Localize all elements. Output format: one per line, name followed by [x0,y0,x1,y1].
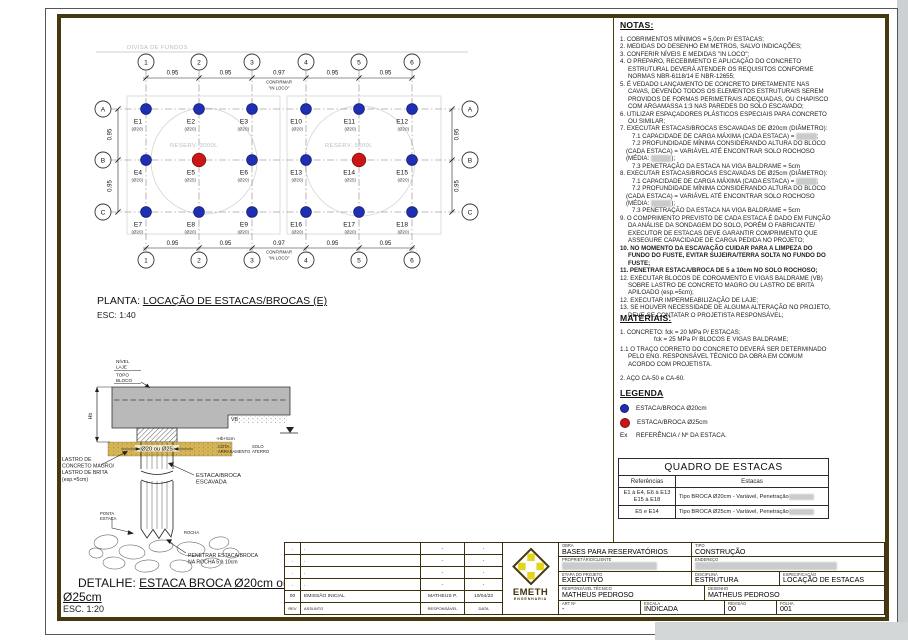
schedule-desc-cell: Tipo BROCA Ø25cm - Variável, Penetração … [676,506,828,518]
field-etapa: ETAPA DO PROJETO EXECUTIVO [559,572,692,585]
revision-cell: - [465,543,502,554]
revision-cell: REV [285,603,301,614]
schedule-row: E1 à E4, E6 à E13 E15 à E18Tipo BROCA Ø2… [619,488,828,506]
note-item: 12. EXECUTAR BLOCOS DE COROAMENTO E VIGA… [620,275,831,297]
dimension-value: 0.95 [327,71,339,77]
pile-id-label: E18 [396,222,408,229]
revision-cell: EMISSÃO INICIAL [301,591,421,602]
field-especificacao: ESPECIFICAÇÃO LOCAÇÃO DE ESTACAS [780,572,884,585]
dimension-value: 0.95 [380,71,392,77]
pile-marker-20 [407,207,418,218]
pile-diameter-label: (Ø20) [131,230,143,235]
mat-item: 1.1 O TRAÇO CORRETO DO CONCRETO DEVERÁ S… [620,346,831,368]
pile-id-label: E6 [240,170,248,177]
cota-label: -Hb+5cm [216,436,235,441]
pile-id-label: E1 [134,119,142,126]
pile-diameter-label: (Ø20) [237,230,249,235]
axis-bubble-label: 6 [410,59,414,66]
schedule-ref-cell: E5 e E14 [619,506,676,518]
notes-heading: NOTAS: [620,20,831,30]
plan-title: PLANTA: LOCAÇÃO DE ESTACAS/BROCAS (E) [97,295,327,307]
redacted-value: ###### [796,178,817,185]
field-row: OBRA BASES PARA RESERVATÓRIOS TIPO CONST… [559,543,884,557]
pile-marker-25 [192,153,206,167]
note-item: 7. EXECUTAR ESTACAS/BROCAS ESCAVADAS DE … [620,125,831,132]
drawing-sheet: DIVISA DE FUNDOSRESERV. 3000LRESERV. 500… [0,0,908,640]
revision-header-row: REVASSUNTORESPONSÁVELDATA [285,603,502,614]
revision-cell: . [301,567,421,578]
revision-cell: - [465,567,502,578]
pile-id-label: E10 [290,119,302,126]
note-item: 2. MEDIDAS DO DESENHO EM METROS, SALVO I… [620,43,831,50]
revision-cell: - [421,579,465,590]
divisa-label: DIVISA DE FUNDOS [127,45,188,51]
lastro-label: LASTRO DECONCRETO MAGRO/LASTRO DE BRITA(… [62,457,115,483]
topo-bloco-label: TOPOBLOCO [116,373,133,383]
revision-cell: 00 [285,591,301,602]
legend-prefix: Ex [620,432,629,439]
pile-marker-20 [194,207,205,218]
ponta-estaca-label: PONTAESTACA [100,511,117,521]
note-item: 7.3 PENETRAÇÃO DA ESTACA NA VIGA BALDRAM… [620,207,831,214]
dimension-value: 0.95 [380,241,392,247]
revision-cell: - [421,555,465,566]
dimension-value: 0.95 [455,128,461,140]
note-item: 5. É VEDADO LANÇAMENTO DE CONCRETO DIRET… [620,81,831,111]
note-item: 7.1 CAPACIDADE DE CARGA MÁXIMA (CADA EST… [620,133,831,140]
note-item: 7.2 PROFUNDIDADE MÍNIMA CONSIDERANDO ALT… [620,185,831,207]
axis-bubble-label: B [101,157,106,164]
mat-item: fck = 25 MPa P/ BLOCOS E VIGAS BALDRAME; [620,336,831,343]
field-endereco: ENDEREÇO ###############################… [692,557,884,570]
schedule-header-cell: Estacas [676,476,828,487]
legend-item: ESTACA/BROCA Ø25cm [620,418,831,428]
pile-id-label: E5 [187,170,195,177]
axis-bubble-label: A [101,106,106,113]
note-item: 6. UTILIZAR ESPAÇADORES PLÁSTICOS ESPECI… [620,111,831,126]
pile-marker-20 [247,104,258,115]
redacted-value: ######## [789,494,814,500]
scan-margin-right [897,0,908,640]
pile-diameter-label: (Ø20) [237,178,249,183]
rocha-label: ROCHA [184,530,199,535]
title-block-fields: OBRA BASES PARA RESERVATÓRIOS TIPO CONST… [559,543,884,614]
dimension-value: 0.95 [108,128,114,140]
revision-cell: DATA [465,603,502,614]
detail-title-prefix: DETALHE: [78,576,139,590]
axis-bubble-label: 6 [410,257,414,264]
pile-schedule-title: QUADRO DE ESTACAS [619,459,828,476]
revision-cell: . [285,555,301,566]
logo-name: EMETH [513,588,548,597]
pile-diameter-label: (Ø20) [291,178,303,183]
dimension-value: 0.95 [327,241,339,247]
revision-empty-row: ..-- [285,567,502,579]
revision-entry-row: 00EMISSÃO INICIALMATHEUS P.10/04/23 [285,591,502,603]
notes-list: 1. COBRIMENTOS MÍNIMOS = 5,0cm P/ ESTACA… [620,36,831,319]
revision-empty-row: ..-- [285,543,502,555]
axis-bubble-label: 3 [250,257,254,264]
pile-marker-20 [194,104,205,115]
field-row: ART Nº - ESCALA INDICADA REVISÃO 00 FOLH… [559,601,884,614]
pile-diameter-label: (Ø20) [397,127,409,132]
redacted-value: ###### [651,155,672,162]
plan-scale: ESC: 1:40 [97,310,136,320]
pile-marker-20 [407,104,418,115]
pile-id-label: E3 [240,119,248,126]
materials-list: 1. CONCRETO: fck = 20 MPa P/ ESTACAS;fck… [620,329,831,382]
legend-label: REFERÊNCIA / Nº DA ESTACA. [636,432,727,439]
dimension-note: CONFIRMAR [266,80,292,85]
pile-marker-20 [301,155,312,166]
pile-marker-20 [247,155,258,166]
logo-subtitle: ENGENHARIA [514,597,547,601]
pile-diameter-label: (Ø25) [344,178,356,183]
axis-bubble-label: B [468,157,473,164]
revision-table: ..--..--..--..--00EMISSÃO INICIALMATHEUS… [285,543,503,614]
revision-cell: . [285,567,301,578]
pile-marker-20 [354,104,365,115]
pile-marker-20 [141,104,152,115]
pile-id-label: E8 [187,222,195,229]
dia-label: Ø20 ou Ø25 [141,447,173,453]
pile-marker-20 [247,207,258,218]
baldrame-hatch-section [137,428,177,442]
ponta-leader-arrow [128,530,135,535]
revision-cell: ASSUNTO [301,603,421,614]
redacted-value: #################################### [695,562,837,570]
revision-cell: . [285,579,301,590]
axis-bubble-label: 3 [250,59,254,66]
plan-title-underlined: LOCAÇÃO DE ESTACAS/BROCAS (E) [143,295,327,307]
note-item: 1. COBRIMENTOS MÍNIMOS = 5,0cm P/ ESTACA… [620,36,831,43]
legend-list: ESTACA/BROCA Ø20cmESTACA/BROCA Ø25cmExRE… [620,404,831,439]
vb-label: VB [231,417,238,423]
pile-layout-plan: DIVISA DE FUNDOSRESERV. 3000LRESERV. 500… [80,38,486,276]
pile-id-label: E11 [344,119,356,126]
schedule-desc-cell: Tipo BROCA Ø20cm - Variável, Penetração … [676,488,828,505]
detail-title: DETALHE: ESTACA BROCA Ø20cm ou [78,576,290,590]
detail-title-line2: Ø25cm [63,590,102,604]
pile-schedule-header: ReferênciasEstacas [619,476,828,488]
legend-label: ESTACA/BROCA Ø20cm [636,405,707,412]
field-row: RESPONSÁVEL TÉCNICO MATHEUS PEDROSO DESE… [559,586,884,600]
redacted-value: ######################## [562,562,657,570]
axis-bubble-label: 5 [357,59,361,66]
plan-title-prefix: PLANTA: [97,295,143,307]
pile-id-label: E16 [290,222,302,229]
revision-cell: . [301,579,421,590]
field-tipo: TIPO CONSTRUÇÃO [692,543,884,556]
pile-id-label: E4 [134,170,142,177]
pile-schedule-rows: E1 à E4, E6 à E13 E15 à E18Tipo BROCA Ø2… [619,488,828,518]
revision-cell: - [465,579,502,590]
reservoir-label: RESERV. 3000L [170,143,218,149]
legend-heading: LEGENDA [620,388,831,398]
legend-section: LEGENDA ESTACA/BROCA Ø20cmESTACA/BROCA Ø… [620,388,831,439]
note-item: 11. PENETRAR ESTACA/BROCA DE 5 a 10cm NO… [620,267,831,274]
pile-tip-zigzag [141,529,173,539]
legend-blue-pile-icon [620,404,629,413]
hb-label: Hb [88,413,94,420]
lastro-vb-texture [232,415,288,423]
axis-bubble-label: 4 [304,257,308,264]
materials-heading: MATERIAIS: [620,313,831,323]
pile-id-label: E14 [343,170,355,177]
pile-id-label: E13 [290,170,302,177]
axis-bubble-label: 1 [144,59,148,66]
pile-marker-20 [141,155,152,166]
notes-section: NOTAS: 1. COBRIMENTOS MÍNIMOS = 5,0cm P/… [620,20,831,319]
legend-item: ESTACA/BROCA Ø20cm [620,404,831,413]
revision-cell: MATHEUS P. [421,591,465,602]
redacted-value: ###### [651,200,672,207]
legend-red-pile-icon [620,418,630,428]
revision-cell: RESPONSÁVEL [421,603,465,614]
pile-diameter-label: (Ø20) [291,127,303,132]
dimension-value: 0.95 [108,180,114,192]
note-item: 12. EXECUTAR IMPERMEABILIZAÇÃO DE LAJE; [620,297,831,304]
axis-bubble-label: 4 [304,59,308,66]
legend-label: ESTACA/BROCA Ø25cm [637,419,708,426]
pile-id-label: E17 [343,222,355,229]
hb-arrow-bottom [95,437,99,442]
note-item: 7.2 PROFUNDIDADE MÍNIMA CONSIDERANDO ALT… [620,140,831,162]
emeth-logo-icon [511,545,551,588]
axis-bubble-label: A [468,106,473,113]
revision-cell: - [421,543,465,554]
pile-marker-20 [354,207,365,218]
schedule-row: E5 e E14Tipo BROCA Ø25cm - Variável, Pen… [619,506,828,518]
solo-aterro-label: SOLOATERRO [252,444,270,454]
field-obra: OBRA BASES PARA RESERVATÓRIOS [559,543,692,556]
pile-diameter-label: (Ø20) [131,178,143,183]
field-disciplina: DISCIPLINA ESTRUTURA [692,572,780,585]
field-revisao: REVISÃO 00 [725,601,777,614]
pile-diameter-label: (Ø20) [291,230,303,235]
field-art: ART Nº - [559,601,641,614]
pile-marker-20 [301,207,312,218]
pile-id-label: E7 [134,222,142,229]
revision-cell: . [301,543,421,554]
pile-diameter-label: (Ø20) [184,127,196,132]
legend-item: ExREFERÊNCIA / Nº DA ESTACA. [620,432,831,439]
dimension-value: 0.95 [220,71,232,77]
field-row: ETAPA DO PROJETO EXECUTIVO DISCIPLINA ES… [559,572,884,586]
dimension-value: 0.97 [273,241,285,247]
mat-item: 2. AÇO CA-50 e CA-60. [620,375,831,382]
axis-bubble-label: 2 [197,257,201,264]
pile-detail-drawing: Hb NÍVELLAJE TOPOBLOCO VB -Hb+5cm COTAAR… [55,352,307,576]
materials-section: MATERIAIS: 1. CONCRETO: fck = 20 MPa P/ … [620,313,831,382]
note-item: 9. O COMPRIMENTO PREVISTO DE CADA ESTACA… [620,215,831,245]
pile-diameter-label: (Ø20) [237,127,249,132]
scan-margin-bottom [655,622,908,640]
redacted-value: ######## [789,509,814,515]
field-escala: ESCALA INDICADA [641,601,725,614]
schedule-ref-cell: E1 à E4, E6 à E13 E15 à E18 [619,488,676,505]
dimension-value: 0.95 [455,180,461,192]
reservoir-label: RESERV. 5000L [325,143,373,149]
field-responsavel: RESPONSÁVEL TÉCNICO MATHEUS PEDROSO [559,586,705,599]
title-block: ..--..--..--..--00EMISSÃO INICIALMATHEUS… [284,542,885,615]
revision-empty-row: ..-- [285,579,502,591]
level-marker-icon [286,427,294,433]
estaca-escavada-label: ESTACA/BROCAESCAVADA [196,473,241,486]
note-item: 8. EXECUTAR ESTACAS/BROCAS ESCAVADAS DE … [620,170,831,177]
mat-item: 1. CONCRETO: fck = 20 MPa P/ ESTACAS; [620,329,831,336]
pile-marker-20 [141,207,152,218]
note-item: 7.3 PENETRAÇÃO DA ESTACA NA VIGA BALDRAM… [620,163,831,170]
pile-id-label: E2 [187,119,195,126]
column-divider [613,18,614,542]
axis-bubble-label: C [468,209,473,216]
pile-id-label: E15 [396,170,408,177]
pile-marker-25 [352,153,366,167]
revision-cell: - [421,567,465,578]
note-item: 7.1 CAPACIDADE DE CARGA MÁXIMA (CADA EST… [620,178,831,185]
dimension-note: "IN LOCO" [269,256,290,261]
field-proprietario: PROPRIETÁRIO/CLIENTE ###################… [559,557,692,570]
detail-scale: ESC. 1:20 [63,604,104,614]
dimension-value: 0.95 [167,241,179,247]
dimension-value: 0.95 [167,71,179,77]
pile-diameter-label: (Ø20) [344,127,356,132]
pile-diameter-label: (Ø20) [131,127,143,132]
field-folha: FOLHA 001 [777,601,884,614]
pile-diameter-label: (Ø25) [184,178,196,183]
nivel-laje-label: NÍVELLAJE [116,358,130,369]
schedule-header-cell: Referências [619,476,676,487]
pile-diameter-label: (Ø20) [397,178,409,183]
note-item: 10. NO MOMENTO DA ESCAVAÇÃO CUIDAR PARA … [620,245,831,267]
field-row: PROPRIETÁRIO/CLIENTE ###################… [559,557,884,571]
pile-diameter-label: (Ø20) [184,230,196,235]
field-desenho: DESENHO MATHEUS PEDROSO [705,586,884,599]
dimension-value: 0.97 [273,71,285,77]
axis-bubble-label: C [101,209,106,216]
revision-cell: - [465,555,502,566]
pile-schedule-table: QUADRO DE ESTACAS ReferênciasEstacas E1 … [618,458,829,519]
company-logo: EMETH ENGENHARIA [503,543,559,614]
axis-bubble-label: 1 [144,257,148,264]
revision-cell: . [301,555,421,566]
penetrar-label: PENETRAR ESTACA/BROCANA ROCHA 5 à 10cm [188,553,258,565]
detail-title-underlined: ESTACA BROCA Ø20cm ou [139,576,290,590]
axis-bubble-label: 2 [197,59,201,66]
pile-diameter-label: (Ø20) [397,230,409,235]
revision-cell: 10/04/23 [465,591,502,602]
pile-id-label: E12 [396,119,408,126]
note-item: 3. CONFERIR NÍVEIS E MEDIDAS "IN LOCO"; [620,51,831,58]
pile-marker-20 [301,104,312,115]
redacted-value: ###### [796,133,817,140]
cota-arrasamento-label: COTAARRASAMENTO [218,444,251,454]
revision-empty-row: ..-- [285,555,502,567]
note-item: 4. O PREPARO, RECEBIMENTO E APLICAÇÃO DO… [620,58,831,80]
axis-bubble-label: 5 [357,257,361,264]
pile-diameter-label: (Ø20) [344,230,356,235]
revision-cell: . [285,543,301,554]
dimension-note: "IN LOCO" [269,86,290,91]
pile-id-label: E9 [240,222,248,229]
hb-arrow-top [95,387,99,392]
pile-marker-20 [407,155,418,166]
dimension-value: 0.95 [220,241,232,247]
dimension-note: CONFIRMAR [266,250,292,255]
